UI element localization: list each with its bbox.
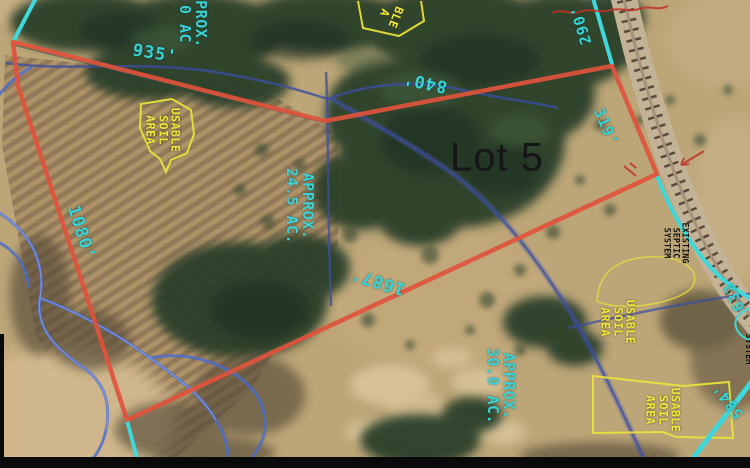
image-bottom-border <box>0 457 750 468</box>
aerial-imagery <box>0 0 750 468</box>
image-left-border <box>0 334 4 468</box>
aerial-plat-map: Lot 5 935' 840' 290' 319' 1080' 1687' 58… <box>0 0 750 468</box>
